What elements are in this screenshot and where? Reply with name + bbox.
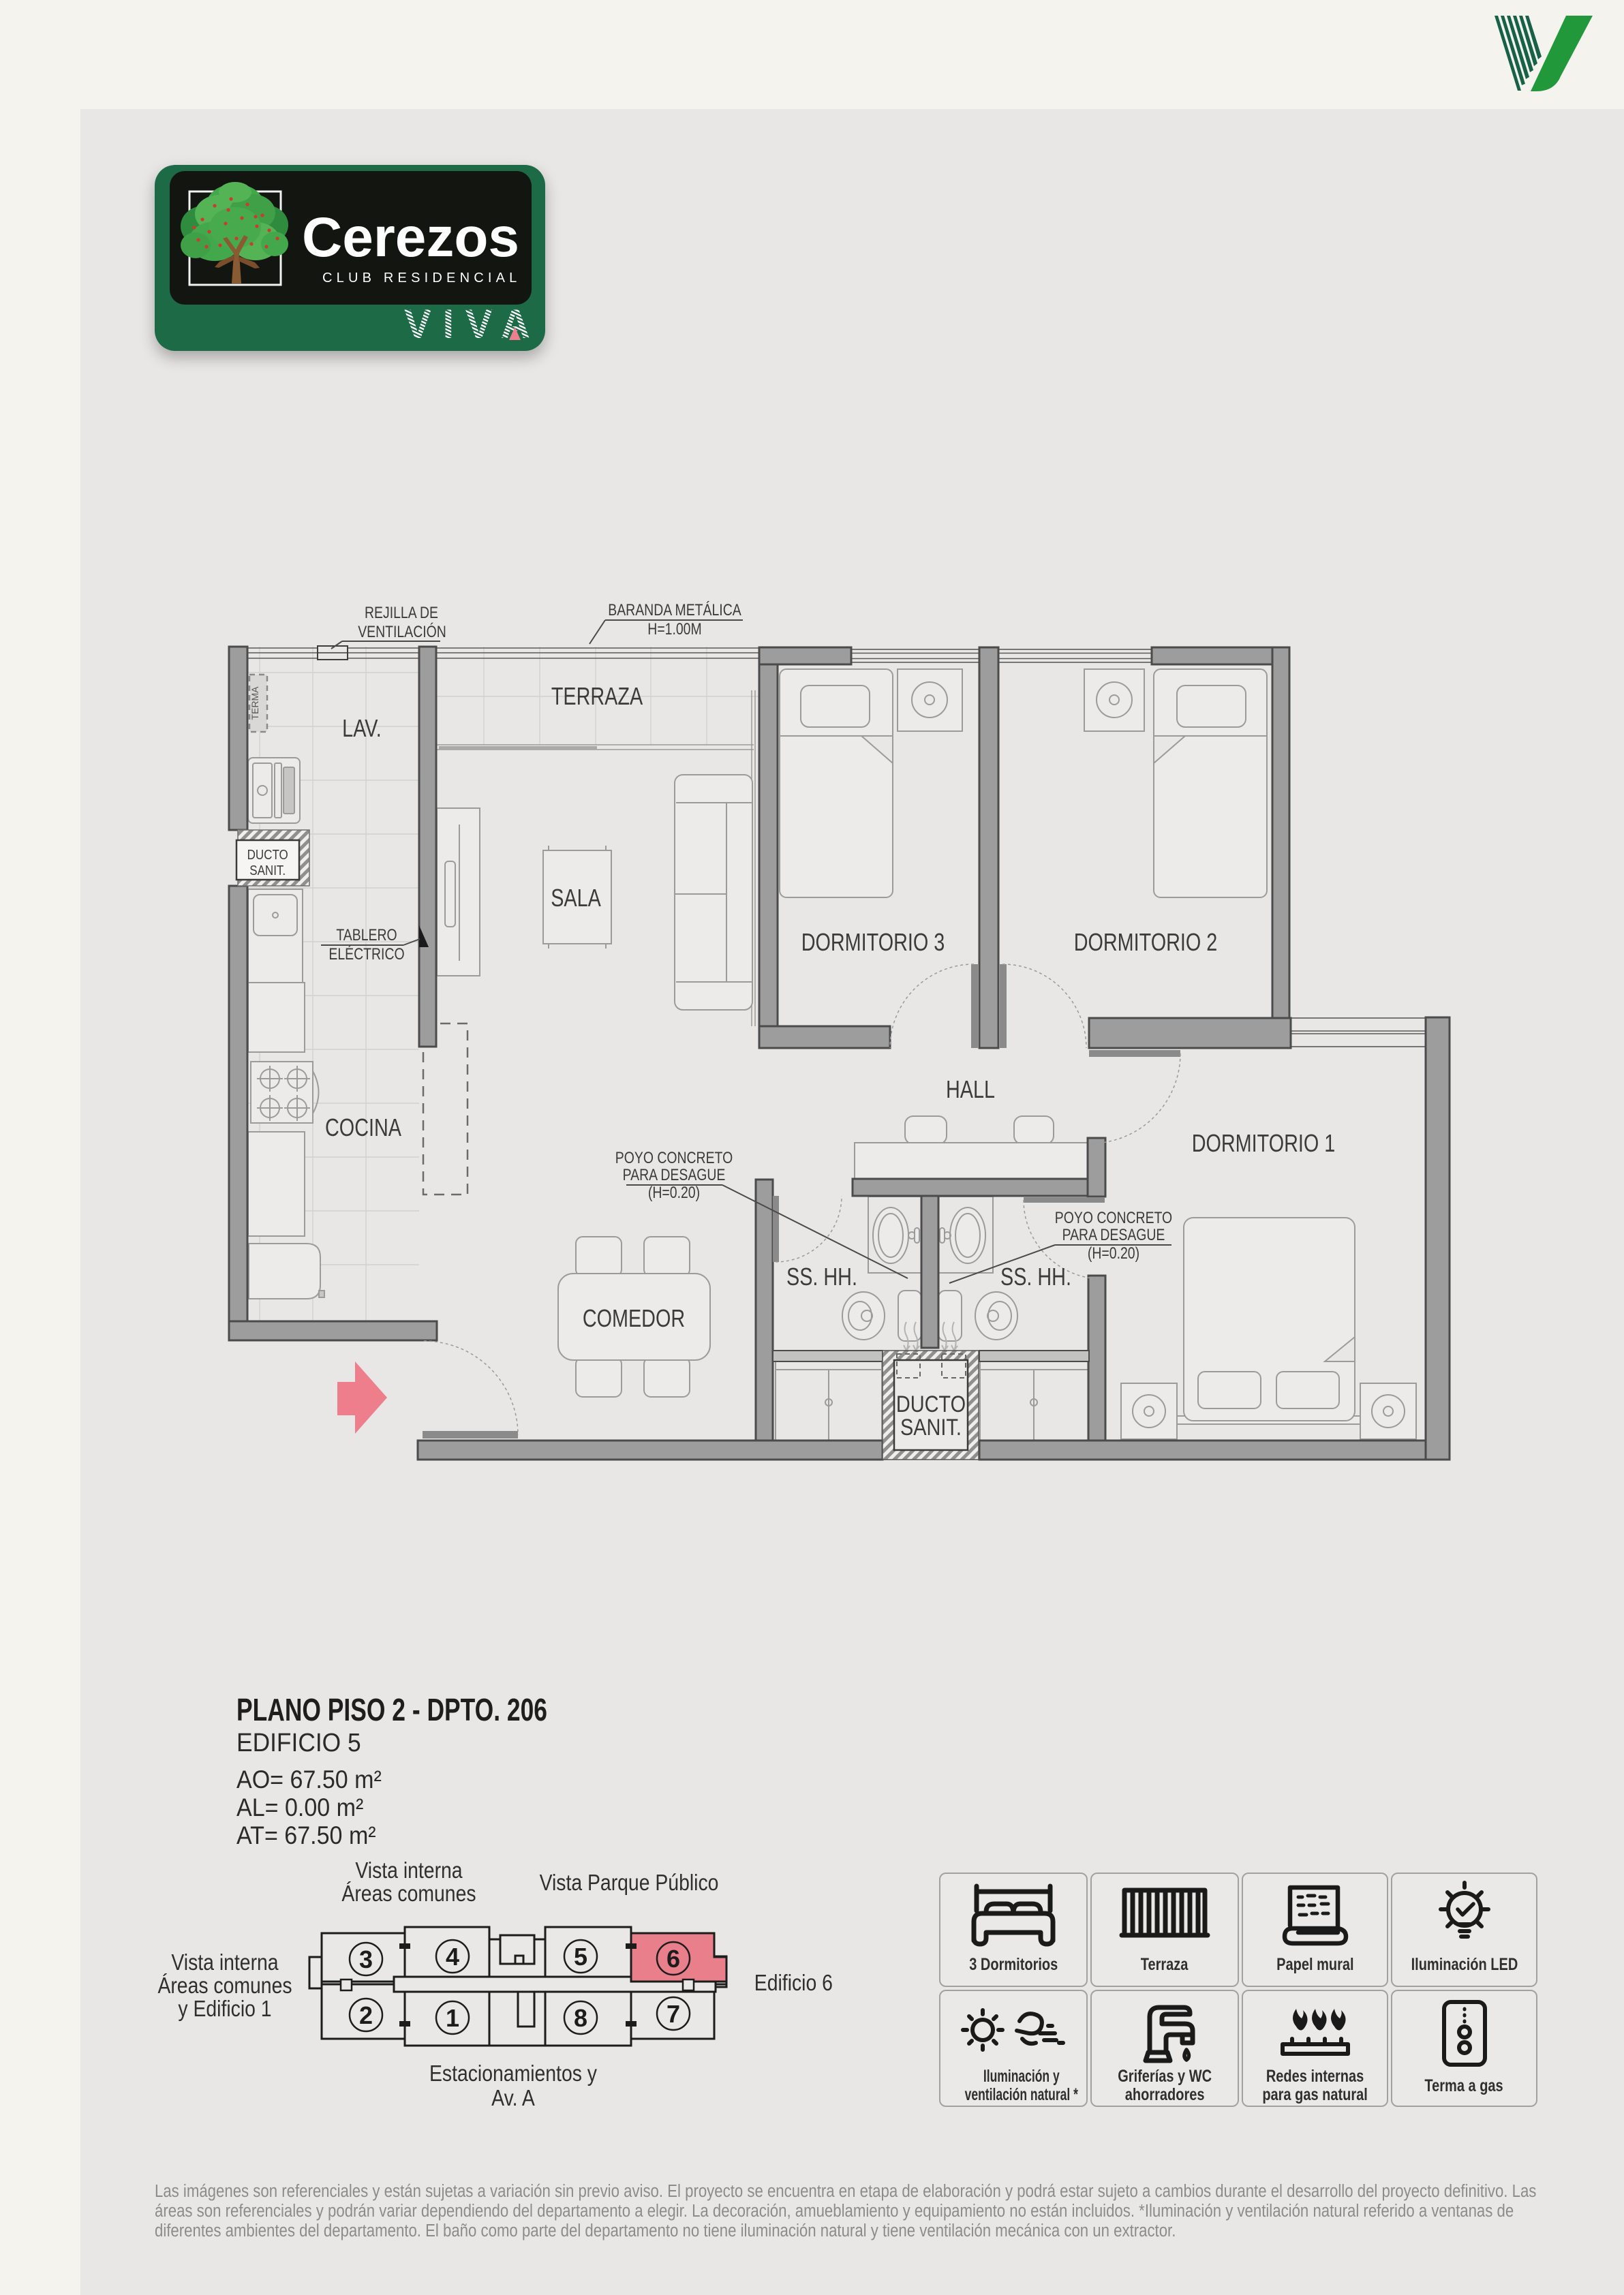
svg-text:Av. A: Av. A — [491, 2085, 535, 2111]
svg-text:Áreas comunes: Áreas comunes — [341, 1881, 476, 1907]
svg-text:HALL: HALL — [946, 1075, 995, 1103]
svg-text:PARA DESAGUE: PARA DESAGUE — [623, 1165, 726, 1184]
svg-text:Vista interna: Vista interna — [355, 1858, 463, 1883]
svg-text:POYO CONCRETO: POYO CONCRETO — [1055, 1208, 1172, 1227]
svg-text:TERMA: TERMA — [249, 686, 260, 720]
svg-text:TABLERO: TABLERO — [336, 925, 397, 944]
svg-text:SANIT.: SANIT. — [900, 1414, 962, 1441]
svg-text:TERRAZA: TERRAZA — [551, 682, 643, 710]
svg-text:6: 6 — [667, 1945, 680, 1973]
svg-text:PARA DESAGUE: PARA DESAGUE — [1062, 1225, 1165, 1244]
svg-text:8: 8 — [574, 2004, 587, 2032]
svg-text:(H=0.20): (H=0.20) — [648, 1183, 700, 1201]
svg-text:DUCTO: DUCTO — [247, 847, 288, 863]
svg-text:REJILLA DE: REJILLA DE — [365, 603, 438, 621]
svg-text:COMEDOR: COMEDOR — [583, 1304, 685, 1332]
svg-text:Vista interna: Vista interna — [171, 1950, 279, 1975]
svg-text:H=1.00M: H=1.00M — [647, 619, 701, 638]
svg-text:DORMITORIO 3: DORMITORIO 3 — [801, 928, 945, 956]
svg-text:Áreas comunes: Áreas comunes — [157, 1973, 292, 1999]
svg-text:4: 4 — [446, 1943, 459, 1971]
svg-text:3: 3 — [359, 1945, 373, 1973]
svg-text:SS. HH.: SS. HH. — [786, 1263, 857, 1291]
svg-text:1: 1 — [446, 2004, 459, 2032]
svg-text:Vista Parque Público: Vista Parque Público — [540, 1870, 719, 1896]
svg-text:COCINA: COCINA — [325, 1113, 401, 1141]
svg-text:y Edificio 1: y Edificio 1 — [178, 1996, 271, 2022]
svg-text:Edificio 6: Edificio 6 — [754, 1970, 833, 1996]
svg-text:LAV.: LAV. — [342, 714, 382, 742]
svg-text:5: 5 — [574, 1943, 587, 1971]
svg-text:SS. HH.: SS. HH. — [1000, 1263, 1071, 1291]
svg-text:DORMITORIO 2: DORMITORIO 2 — [1074, 928, 1218, 956]
svg-text:2: 2 — [359, 2001, 373, 2029]
svg-text:BARANDA METÁLICA: BARANDA METÁLICA — [608, 600, 741, 619]
svg-text:POYO CONCRETO: POYO CONCRETO — [615, 1148, 733, 1167]
svg-text:DORMITORIO 1: DORMITORIO 1 — [1192, 1129, 1336, 1157]
svg-text:DUCTO: DUCTO — [896, 1391, 966, 1417]
svg-text:SANIT.: SANIT. — [249, 863, 286, 878]
svg-text:Estacionamientos y: Estacionamientos y — [429, 2061, 598, 2086]
svg-text:SALA: SALA — [551, 884, 601, 912]
svg-text:(H=0.20): (H=0.20) — [1088, 1244, 1139, 1262]
svg-text:7: 7 — [667, 2000, 680, 2028]
svg-text:ELÉCTRICO: ELÉCTRICO — [328, 944, 404, 963]
svg-text:VENTILACIÓN: VENTILACIÓN — [358, 622, 446, 641]
